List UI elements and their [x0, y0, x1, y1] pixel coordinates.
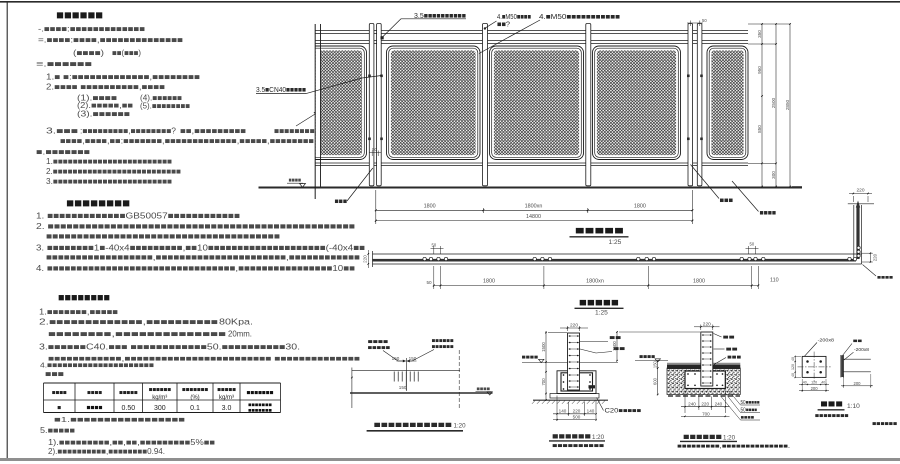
- svg-text:2.■■■■■■■■■■■■■,■■■■■■■■■■: 2.■■■■■■■■■■■■■,■■■■■■■■■■: [39, 318, 218, 327]
- svg-text:■■■: ■■■: [727, 355, 741, 361]
- svg-text:■.■■■■■■■: ■.■■■■■■■: [36, 148, 90, 157]
- svg-text:3.■■■■■■C40.■■■ ■■■■■■■■■■■■50: 3.■■■■■■C40.■■■ ■■■■■■■■■■■■50.■■■■■■■■■…: [39, 343, 300, 352]
- svg-text:40: 40: [821, 380, 825, 384]
- svg-text:■■■■■■■■■,■■■■■■■■■■■■■■.: ■■■■■■■■■,■■■■■■■■■■■■■■.: [677, 444, 790, 450]
- svg-text:1.■ ■:■■■■■■■■■■■■■,■■■■■■■■: 1.■ ■:■■■■■■■■■■■■■,■■■■■■■■: [46, 73, 200, 82]
- svg-text:240: 240: [715, 402, 723, 407]
- svg-text:4.■M50■■■■■■■■■■■: 4.■M50■■■■■■■■■■■: [539, 12, 621, 21]
- svg-text:2500: 2500: [771, 97, 776, 108]
- svg-text:150: 150: [653, 360, 658, 368]
- svg-text:120: 120: [791, 364, 795, 370]
- svg-text:220: 220: [701, 402, 709, 407]
- svg-text:■■■■■■: ■■■■■■: [683, 432, 722, 442]
- svg-text:■■■: ■■■: [335, 197, 348, 206]
- svg-text:140: 140: [587, 409, 595, 414]
- svg-text:3.5■■■■■■■■■■: 3.5■■■■■■■■■■: [414, 11, 466, 20]
- svg-text:■: ■: [57, 405, 61, 412]
- svg-text:■■: ■■: [853, 338, 862, 344]
- svg-text:(%): (%): [190, 395, 199, 401]
- svg-text:kg/m³: kg/m³: [152, 395, 167, 401]
- svg-text:■■■■■: ■■■■■: [579, 297, 619, 309]
- svg-text:1:20: 1:20: [454, 422, 467, 429]
- svg-text:220: 220: [570, 323, 578, 329]
- svg-text:■1.■■■■■■■■■■■■■■■■■: ■1.■■■■■■■■■■■■■■■■■: [54, 415, 186, 424]
- svg-text:1800xn: 1800xn: [586, 279, 604, 285]
- svg-text:110: 110: [770, 278, 779, 284]
- svg-text:300: 300: [154, 405, 166, 412]
- svg-text:0.50: 0.50: [121, 405, 135, 412]
- svg-text:0.1: 0.1: [190, 405, 200, 412]
- svg-text:1800: 1800: [424, 204, 436, 210]
- svg-text:■■■: ■■■: [720, 196, 734, 205]
- svg-text:1.■■■■■■■■■■■■■■■■■■■■■■■■: 1.■■■■■■■■■■■■■■■■■■■■■■■■: [46, 157, 172, 166]
- svg-text:500: 500: [573, 415, 581, 420]
- svg-text:■■■■: ■■■■: [52, 390, 67, 397]
- svg-text:220: 220: [856, 188, 864, 194]
- svg-text:150: 150: [399, 385, 407, 390]
- svg-text:■■■■: ■■■■: [522, 355, 539, 361]
- svg-text:50: 50: [702, 18, 707, 23]
- svg-text:=.■■■■:■■■■,■■■■■■■■■■■■■■: =.■■■■:■■■■,■■■■■■■■■■■■■■: [38, 36, 183, 45]
- svg-text:■■■■,■■■■,■■:■■■■■■■,■■■■■■■■■: ■■■■,■■■■,■■:■■■■■■■,■■■■■■■■■■■■■,■■■■■…: [60, 137, 314, 146]
- svg-text:240: 240: [688, 402, 696, 407]
- svg-text:1:25: 1:25: [595, 310, 608, 317]
- svg-text:≡.■■■■■■: ≡.■■■■■■: [36, 60, 92, 69]
- svg-text:2).■■■■■■■■■■,■■■■■■■■0.94.: 2).■■■■■■■■■■,■■■■■■■■0.94.: [48, 447, 165, 456]
- svg-text:220: 220: [573, 409, 581, 414]
- svg-text:1800: 1800: [693, 279, 705, 285]
- svg-text:■■■■■: ■■■■■: [575, 225, 624, 237]
- svg-text:■■■■: ■■■■: [87, 390, 102, 397]
- svg-text:■■■■■■■■■■■: ■■■■■■■■■■■: [374, 419, 452, 429]
- svg-text:■■■■■■: ■■■■■■: [56, 8, 103, 22]
- svg-text:■■■■■■■■,: ■■■■■■■■,: [274, 127, 317, 136]
- svg-text:■■: ■■: [723, 335, 736, 341]
- svg-text:2. ■■■■■■■■■■■■■■■■■■■■■■■■■■■: 2. ■■■■■■■■■■■■■■■■■■■■■■■■■■■■■■■■■■■■■…: [36, 221, 355, 231]
- svg-text:kg/m³: kg/m³: [219, 395, 234, 401]
- svg-text:150: 150: [392, 356, 400, 361]
- svg-text:300: 300: [771, 171, 776, 179]
- svg-text:■■■■■■■■■■■■■■■■■■,■■■■■■■■■■■: ■■■■■■■■■■■■■■■■■■,■■■■■■■■■■■■■■■■■■■■■…: [46, 252, 360, 262]
- svg-text:950: 950: [757, 66, 762, 74]
- svg-text:(■■■■): (■■■■): [73, 49, 104, 58]
- svg-text:■■■■: ■■■■: [760, 208, 777, 217]
- svg-text:■■: ■■: [609, 336, 622, 342]
- svg-text:■■■■■: ■■■■■: [119, 390, 138, 397]
- svg-text:1:25: 1:25: [609, 239, 622, 246]
- svg-text:-.■■■■:■■■■■■■■■■■■■: -.■■■■:■■■■■■■■■■■■■: [38, 25, 145, 34]
- svg-text:■■■■■■■■■■■■■■■■■■■■■■■■■■■■■■: ■■■■■■■■■■■■■■■■■■■■■■■■■■■■■■■■■■■■■■: [46, 231, 280, 241]
- svg-text:220: 220: [703, 321, 711, 327]
- svg-text:2850: 2850: [785, 99, 790, 110]
- svg-text:14800: 14800: [526, 214, 541, 220]
- svg-text:2.■■■■ ■■■■■■■■■■,■■■■: 2.■■■■ ■■■■■■■■■■,■■■■: [46, 83, 165, 92]
- svg-text:■■■■■■: ■■■■■■: [432, 344, 454, 350]
- svg-text:■■■■: ■■■■: [87, 405, 103, 412]
- svg-text:200: 200: [854, 381, 862, 386]
- svg-text:1500: 1500: [612, 341, 617, 351]
- svg-text:3.■■■: 3.■■■: [46, 127, 78, 136]
- svg-text:■■■■■■: ■■■■■■: [149, 387, 172, 394]
- svg-text:700: 700: [541, 378, 546, 386]
- svg-text:■■?: ■■?: [497, 20, 510, 29]
- svg-text:3.■■■■■■■■■■■■■■■■■■■■■■■■: 3.■■■■■■■■■■■■■■■■■■■■■■■■: [46, 177, 172, 186]
- svg-text:-200x8: -200x8: [818, 338, 835, 343]
- svg-text:140: 140: [559, 409, 567, 414]
- svg-text:1800: 1800: [634, 204, 646, 210]
- svg-text:150: 150: [409, 356, 417, 361]
- svg-text:■■■■■■■■: ■■■■■■■■: [815, 414, 849, 420]
- svg-text:4. ■■■■■■■■■■■■■■■■■■■■■■■■■■■: 4. ■■■■■■■■■■■■■■■■■■■■■■■■■■■■■■■■,■■■■…: [36, 263, 355, 273]
- svg-text:■■■■■■■■,■■■■■■■■■■■■■■: ■■■■■■■■,■■■■■■■■■■■■■■: [48, 330, 226, 339]
- svg-text:80Kpa.: 80Kpa.: [219, 317, 253, 327]
- svg-text:40: 40: [791, 373, 795, 377]
- svg-text:■■■■■■■: ■■■■■■■: [182, 387, 208, 394]
- svg-text:■■■■■■: ■■■■■■: [552, 431, 591, 441]
- svg-text:50: 50: [432, 243, 437, 248]
- svg-text:40: 40: [803, 380, 807, 384]
- svg-text:(3).■■■■■■: (3).■■■■■■: [77, 110, 130, 119]
- svg-text:■■■■: ■■■■: [877, 275, 893, 281]
- svg-text:C20■■■■■: C20■■■■■: [605, 409, 642, 415]
- svg-text::■■■■■■■■■,■■■■■■■■?: :■■■■■■■■■,■■■■■■■■?: [80, 127, 177, 136]
- svg-text:■■■: ■■■: [820, 398, 843, 410]
- svg-text:1800xn: 1800xn: [525, 204, 543, 210]
- svg-text:-200x8: -200x8: [854, 347, 869, 352]
- svg-text:5.■■■■■: 5.■■■■■: [40, 426, 75, 435]
- svg-text:■■,■■■■■■■■■: ■■,■■■■■■■■■: [180, 127, 246, 136]
- svg-text:3.5■CN40■■■■■: 3.5■CN40■■■■■: [256, 85, 306, 94]
- svg-text:220: 220: [363, 255, 368, 263]
- svg-text:■■■■■■: ■■■■■■: [872, 422, 897, 428]
- svg-text:200: 200: [811, 386, 819, 391]
- svg-text:1500: 1500: [541, 342, 546, 352]
- svg-text:■■: ■■: [726, 347, 739, 353]
- svg-text:1:20: 1:20: [592, 434, 605, 441]
- svg-text:700: 700: [702, 411, 710, 416]
- svg-text:■■■■■■■: ■■■■■■■: [248, 408, 272, 414]
- svg-text:1. ■■■■■■■■■■■■■GB50057■■■■■■■: 1. ■■■■■■■■■■■■■GB50057■■■■■■■■■■■■: [36, 211, 240, 221]
- svg-text:■■■■■: ■■■■■: [217, 387, 236, 394]
- svg-text:2.■■■■■■■■■■■■■■■■■■■■■■■■■■: 2.■■■■■■■■■■■■■■■■■■■■■■■■■■: [46, 167, 181, 176]
- svg-text:1.■■■■■■■,■■■■■: 1.■■■■■■■,■■■■■: [39, 308, 118, 317]
- svg-text:■■■■■■■■: ■■■■■■■■: [66, 196, 130, 210]
- svg-text:■■■■■■■■■■: ■■■■■■■■■■: [552, 444, 605, 450]
- svg-text:1:10: 1:10: [847, 403, 860, 410]
- svg-text:350: 350: [757, 30, 762, 38]
- svg-text:40: 40: [791, 357, 795, 361]
- svg-text:1).■■■■■■■■■,■■,■■,■■■■■■■■■5%: 1).■■■■■■■■■,■■,■■,■■■■■■■■■5%■■: [48, 438, 215, 447]
- svg-text:20mm.: 20mm.: [228, 329, 252, 339]
- svg-text:■■■: ■■■: [45, 370, 64, 379]
- svg-text:■■■■■: ■■■■■: [368, 345, 391, 351]
- svg-text:1800: 1800: [483, 279, 495, 285]
- svg-text:1:20: 1:20: [723, 435, 736, 442]
- svg-text:220: 220: [873, 253, 878, 261]
- svg-text:■■■■■■■: ■■■■■■■: [246, 390, 273, 397]
- svg-text:50: 50: [372, 147, 377, 152]
- svg-text:600: 600: [653, 377, 658, 385]
- svg-text:■■■■■■■■: ■■■■■■■■: [58, 292, 110, 304]
- svg-text:120: 120: [811, 380, 817, 384]
- svg-text:50: 50: [750, 242, 755, 247]
- svg-text:■■■■: ■■■■: [639, 355, 655, 361]
- svg-text:50: 50: [426, 280, 432, 285]
- svg-text:4.■■■■■■■■■■■■■■■■■■■■■: 4.■■■■■■■■■■■■■■■■■■■■■: [40, 361, 154, 370]
- svg-text:■■(■■■): ■■(■■■): [112, 49, 141, 58]
- svg-text:(5).■■■■■■■■: (5).■■■■■■■■: [140, 102, 190, 111]
- svg-text:3.0: 3.0: [222, 405, 232, 412]
- svg-text:850: 850: [757, 125, 762, 133]
